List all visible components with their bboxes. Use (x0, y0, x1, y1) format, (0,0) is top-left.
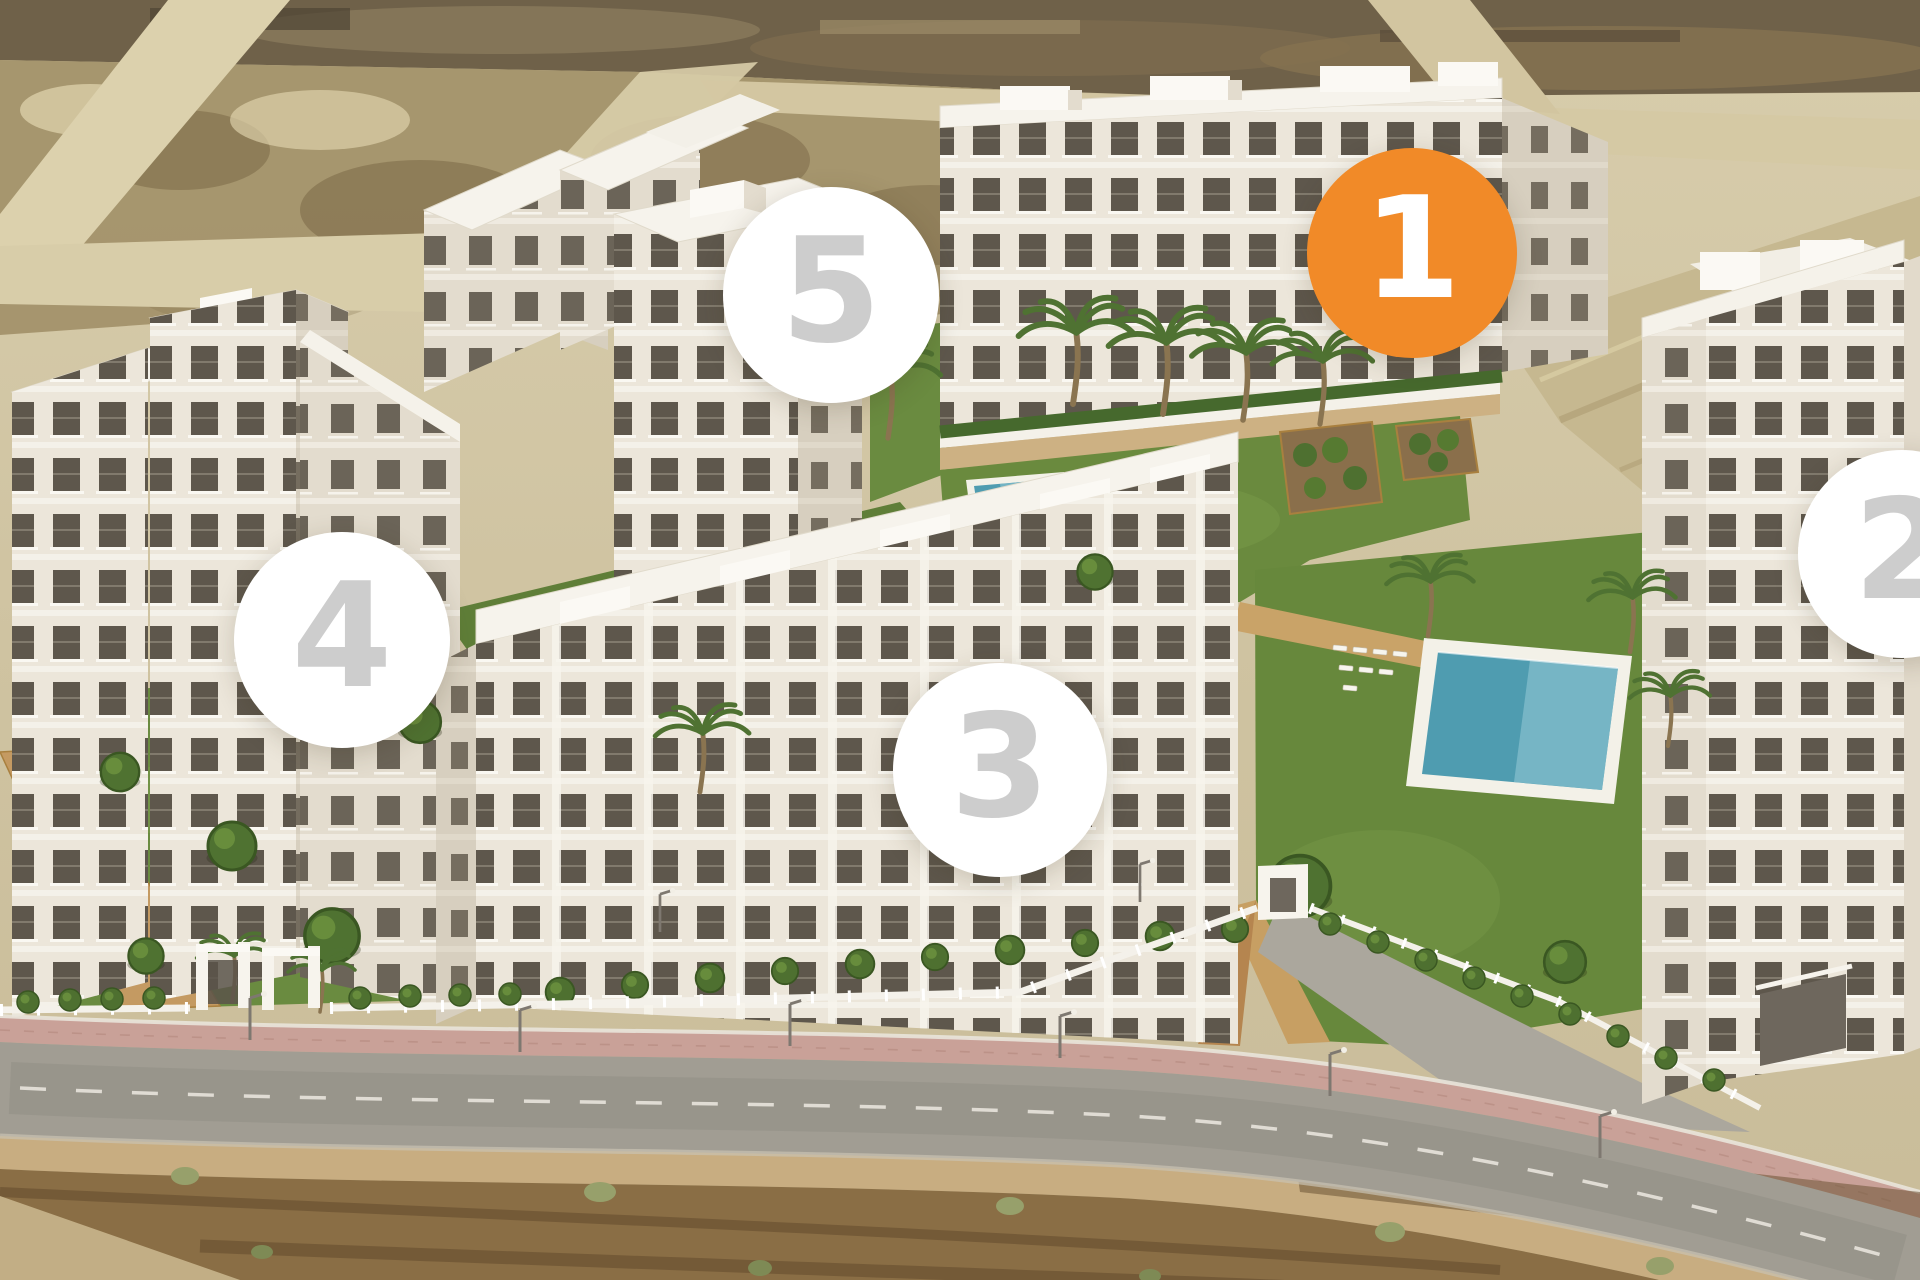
b4-left-front (12, 348, 148, 1018)
phase-marker-3-label: 3 (950, 695, 1050, 838)
phase-marker-5-label: 5 (781, 219, 882, 364)
b3-facade-west (436, 644, 476, 1024)
phase-marker-1-label: 1 (1363, 179, 1461, 320)
phase-marker-2-label: 2 (1854, 481, 1920, 620)
site-plan: 1 2 3 4 5 (0, 0, 1920, 1280)
phase-marker-1[interactable]: 1 (1307, 148, 1517, 358)
pool-main (1406, 638, 1632, 804)
phase-marker-4[interactable]: 4 (234, 532, 450, 748)
b1-facade-side (1502, 98, 1608, 372)
phase-marker-5[interactable]: 5 (723, 187, 939, 403)
phase-marker-3[interactable]: 3 (893, 663, 1107, 877)
b2-facade-front (1706, 262, 1904, 1082)
phase-marker-4-label: 4 (292, 564, 393, 709)
b2-facade-west (1642, 318, 1706, 1104)
